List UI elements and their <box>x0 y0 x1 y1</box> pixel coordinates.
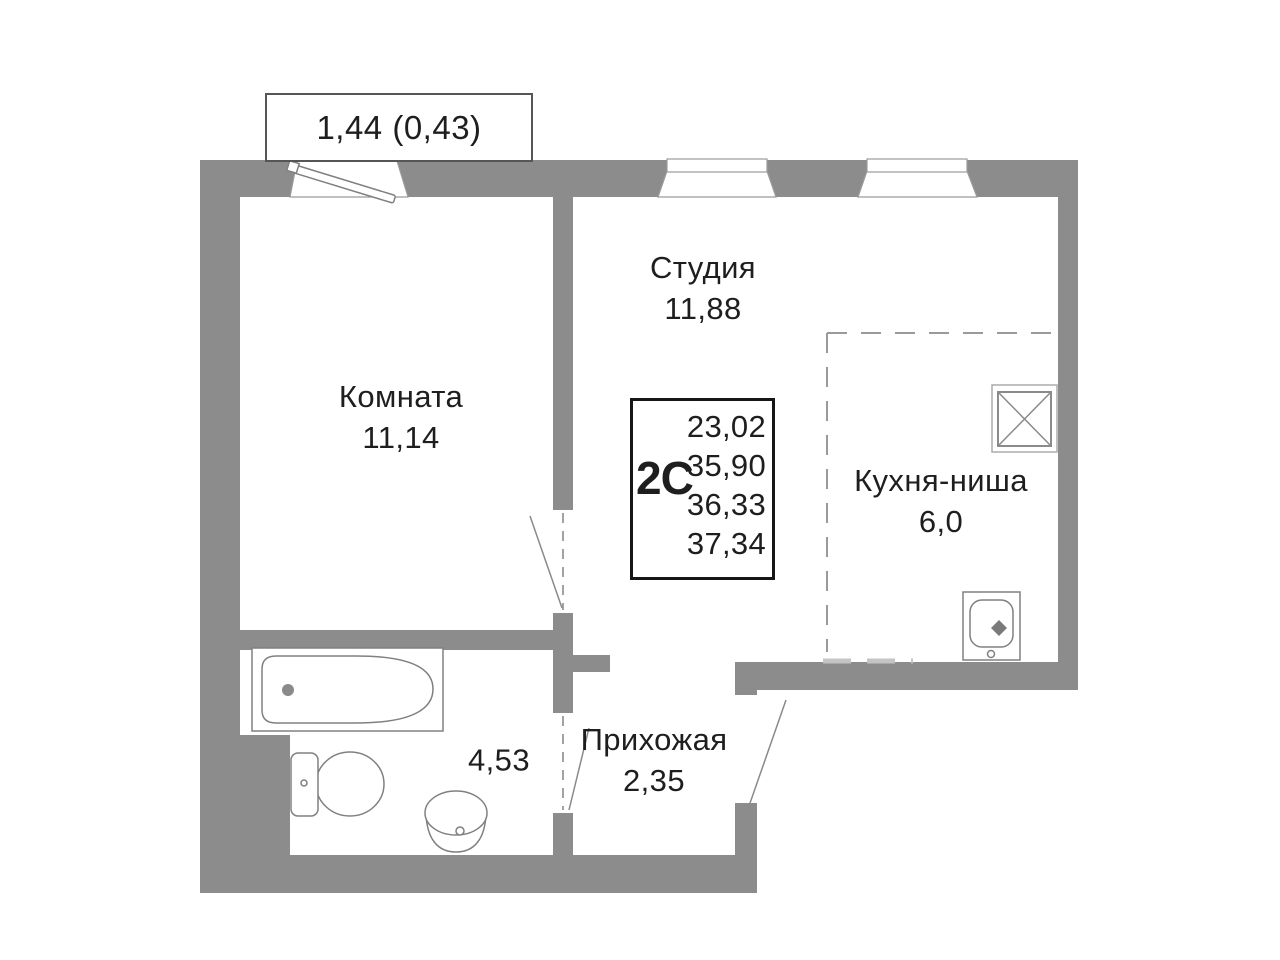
entrance-door-swing <box>749 700 786 806</box>
area-value: 35,90 <box>687 446 766 485</box>
room-area: 11,14 <box>339 417 463 458</box>
window-icon <box>858 159 977 197</box>
room-name: Прихожая <box>581 719 728 760</box>
room-name: Кухня-ниша <box>854 460 1028 501</box>
balcony: 1,44 (0,43) <box>265 93 533 162</box>
window-icon <box>658 159 776 197</box>
bathtub <box>252 648 443 731</box>
room-area: 2,35 <box>581 760 728 801</box>
room-name: Студия <box>650 247 756 288</box>
room-label-bathroom: 4,53 <box>468 740 530 781</box>
apartment-type: 2С <box>636 451 693 505</box>
area-value: 37,34 <box>687 524 766 563</box>
floor-plan: 1,44 (0,43) Комната 11,14 Студия 11,88 К… <box>0 0 1280 960</box>
area-value: 36,33 <box>687 485 766 524</box>
room-area: 4,53 <box>468 740 530 781</box>
room-label-komnata: Комната 11,14 <box>339 376 463 458</box>
balcony-label: 1,44 (0,43) <box>316 109 481 147</box>
balcony-door <box>287 161 408 203</box>
kitchen-sink <box>963 592 1020 660</box>
room-area: 11,88 <box>650 288 756 329</box>
room-label-kitchen: Кухня-ниша 6,0 <box>854 460 1028 542</box>
ventilation-shaft-icon <box>992 385 1057 452</box>
pedestal-sink <box>425 791 487 852</box>
room-label-hallway: Прихожая 2,35 <box>581 719 728 801</box>
area-value: 23,02 <box>687 407 766 446</box>
room-area: 6,0 <box>854 501 1028 542</box>
toilet <box>291 752 384 816</box>
apartment-info-box: 2С 23,02 35,90 36,33 37,34 <box>630 398 775 580</box>
room-name: Комната <box>339 376 463 417</box>
door-opening-room <box>530 513 563 610</box>
apartment-areas: 23,02 35,90 36,33 37,34 <box>687 407 766 563</box>
room-label-studio: Студия 11,88 <box>650 247 756 329</box>
